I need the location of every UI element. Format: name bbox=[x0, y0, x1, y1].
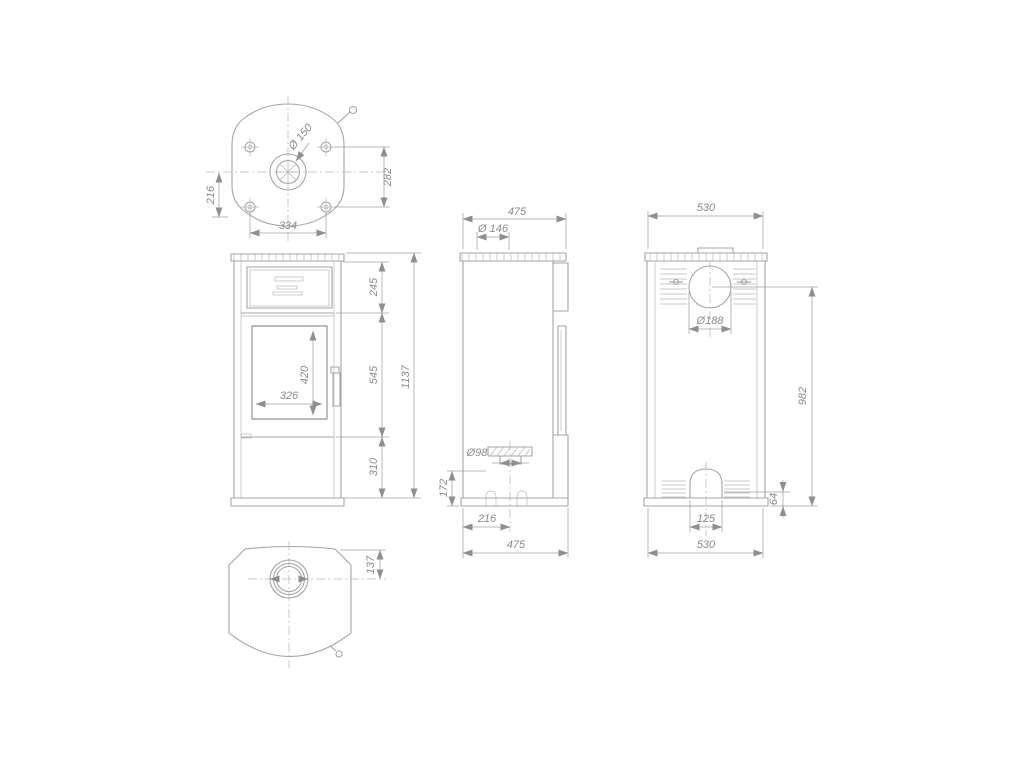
front-height-dims: 245 545 310 1137 bbox=[336, 253, 421, 498]
dim-label-flue-diameter: Ø 150 bbox=[286, 121, 316, 153]
vent-slot bbox=[273, 292, 302, 295]
fire-door bbox=[252, 326, 327, 419]
bottom-view: 137 bbox=[229, 541, 386, 668]
rear-top-vents bbox=[660, 269, 756, 304]
drawing-sheet: Ø 150 216 282 334 bbox=[0, 0, 1024, 768]
side-body bbox=[461, 261, 568, 506]
dim-label-flue-offset: 137 bbox=[365, 555, 377, 574]
technical-drawing: Ø 150 216 282 334 bbox=[0, 0, 1024, 768]
side-view: 475 Ø 146 Ø98 172 216 bbox=[438, 206, 568, 558]
top-view: Ø 150 216 282 334 bbox=[205, 96, 394, 241]
dim-inlet-height: 172 bbox=[438, 471, 486, 506]
door-handle bbox=[331, 367, 340, 406]
dim-glass-height: 420 bbox=[299, 331, 313, 415]
vent-slot bbox=[277, 286, 297, 289]
dim-label-width-top: 530 bbox=[697, 202, 716, 214]
dim-label-center-to-rear: 216 bbox=[205, 185, 217, 205]
dim-label-depth-top: 475 bbox=[508, 206, 527, 218]
dim-label-arch-width: 125 bbox=[697, 513, 716, 525]
dim-flue-collar: Ø 146 bbox=[477, 223, 509, 250]
dim-width-top: 530 bbox=[648, 202, 763, 249]
dim-label-inlet-offset: 216 bbox=[477, 513, 497, 525]
dim-center-to-rear: 216 bbox=[205, 173, 228, 217]
dim-label-rear-outlet: Ø188 bbox=[696, 315, 725, 327]
dim-label-inlet-height: 172 bbox=[438, 479, 450, 497]
lid-pin bbox=[338, 107, 357, 124]
dim-air-inlet: Ø98 bbox=[466, 447, 529, 463]
dim-flue-diameter: Ø 150 bbox=[286, 121, 316, 161]
dim-label-base-section: 310 bbox=[368, 457, 380, 476]
dim-label-width-bottom: 530 bbox=[697, 539, 716, 551]
dim-label-top-section: 245 bbox=[368, 277, 380, 297]
dim-label-bolt-depth: 282 bbox=[382, 168, 394, 187]
dim-label-plinth-height: 64 bbox=[768, 493, 780, 505]
dim-label-glass-height: 420 bbox=[299, 365, 311, 384]
bottom-knob bbox=[330, 646, 342, 657]
dim-label-outlet-height: 982 bbox=[797, 387, 809, 405]
rear-top-tab bbox=[698, 248, 733, 253]
dim-label-air-inlet: Ø98 bbox=[466, 447, 489, 459]
front-base bbox=[231, 498, 344, 506]
rear-view: Ø188 530 982 6 bbox=[644, 202, 818, 558]
rear-flue-outlet bbox=[689, 260, 731, 340]
dim-label-glass-width: 326 bbox=[280, 390, 299, 402]
dim-label-flue-collar: Ø 146 bbox=[477, 223, 509, 235]
upper-vent-panel bbox=[247, 267, 332, 308]
dim-flue-offset: 137 bbox=[340, 550, 386, 579]
dim-bolt-depth: 282 bbox=[334, 147, 394, 207]
dim-glass-width: 326 bbox=[256, 390, 322, 404]
front-view: 420 326 245 545 310 1137 bbox=[231, 253, 421, 506]
dim-label-bolt-width: 334 bbox=[279, 220, 297, 232]
dim-label-depth-bottom: 475 bbox=[507, 539, 526, 551]
side-base bbox=[461, 498, 568, 506]
dim-inlet-offset: 216 bbox=[463, 508, 510, 532]
vent-slot bbox=[275, 277, 303, 281]
dim-label-middle-section: 545 bbox=[368, 365, 380, 384]
dim-label-total-height: 1137 bbox=[400, 364, 412, 389]
